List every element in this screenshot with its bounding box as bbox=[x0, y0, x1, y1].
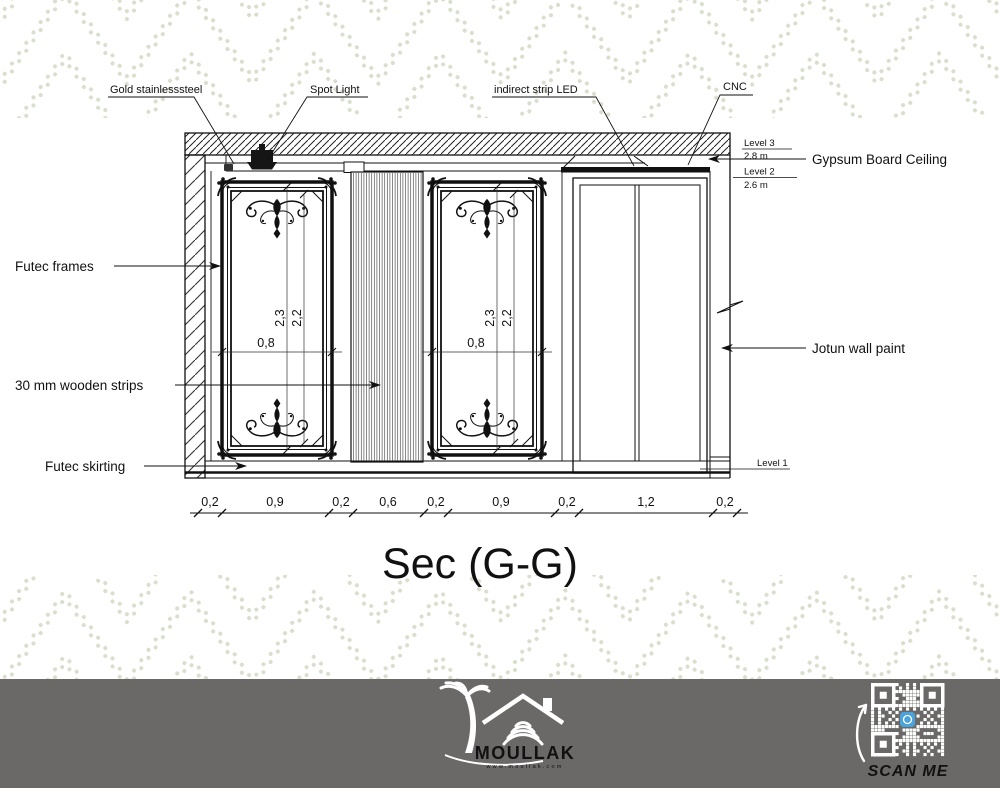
frame-2-height-inner: 2,2 bbox=[500, 309, 514, 326]
label-gold-stainless-steel: Gold stainlesssteel bbox=[110, 84, 202, 96]
frame-2-width: 0,8 bbox=[467, 336, 484, 350]
page: { "title": "Sec (G-G)", "annotations": {… bbox=[0, 0, 1000, 788]
dim-h-8: 0,2 bbox=[716, 495, 733, 509]
label-jotun-wall-paint: Jotun wall paint bbox=[812, 341, 905, 356]
dim-h-3: 0,6 bbox=[379, 495, 396, 509]
dim-h-5: 0,9 bbox=[492, 495, 509, 509]
brand-name: MOULLAK bbox=[475, 743, 575, 763]
wifi-arcs-icon bbox=[504, 723, 542, 744]
level-3-name: Level 3 bbox=[744, 138, 775, 149]
strip-top-detail bbox=[344, 162, 364, 173]
level-2-name: Level 2 bbox=[744, 167, 775, 178]
level-2-elevation: 2.6 m bbox=[744, 180, 768, 191]
level-3-elevation: 2.8 m bbox=[744, 151, 768, 162]
wooden-strips-lines bbox=[354, 173, 422, 461]
brand-logo: MOULLAK www.moullak.com bbox=[435, 679, 585, 779]
brand-website: www.moullak.com bbox=[485, 764, 563, 770]
label-gypsum-board-ceiling: Gypsum Board Ceiling bbox=[812, 152, 947, 167]
label-spot-light: Spot Light bbox=[310, 84, 360, 96]
frame-1-width: 0,8 bbox=[257, 336, 274, 350]
section-drawing: 2,3 2,2 0,8 2,3 2,2 0,8 Gold stainlessst… bbox=[0, 0, 1000, 620]
label-cnc: CNC bbox=[723, 81, 747, 93]
qr-label: SCAN ME bbox=[868, 763, 949, 780]
label-wooden-strips: 30 mm wooden strips bbox=[15, 378, 144, 393]
qr-center-icon bbox=[900, 712, 915, 727]
label-futec-frames: Futec frames bbox=[15, 259, 94, 274]
drawing-title: Sec (G-G) bbox=[382, 540, 578, 588]
label-indirect-strip-led: indirect strip LED bbox=[494, 84, 578, 96]
dim-h-4: 0,2 bbox=[427, 495, 444, 509]
house-roof-icon bbox=[483, 696, 563, 723]
dim-h-0: 0,2 bbox=[201, 495, 218, 509]
frame-1-height-outer: 2,3 bbox=[273, 309, 287, 326]
level-lines bbox=[700, 149, 797, 469]
frame-2-height-outer: 2,3 bbox=[483, 309, 497, 326]
dim-h-2: 0,2 bbox=[332, 495, 349, 509]
footer: MOULLAK www.moullak.com SCAN ME bbox=[0, 679, 1000, 788]
dim-h-6: 0,2 bbox=[558, 495, 575, 509]
frame-1-height-inner: 2,2 bbox=[290, 309, 304, 326]
level-1-name: Level 1 bbox=[757, 458, 788, 469]
dim-h-7: 1,2 bbox=[637, 495, 654, 509]
gold-stainless-piece bbox=[224, 164, 233, 171]
qr-code: SCAN ME bbox=[850, 679, 965, 784]
left-wall-hatch bbox=[185, 155, 205, 478]
curved-arrow-icon bbox=[857, 705, 866, 761]
dim-h-1: 0,9 bbox=[266, 495, 283, 509]
cnc-panel bbox=[573, 178, 707, 473]
label-futec-skirting: Futec skirting bbox=[45, 459, 125, 474]
led-strip bbox=[561, 167, 710, 173]
